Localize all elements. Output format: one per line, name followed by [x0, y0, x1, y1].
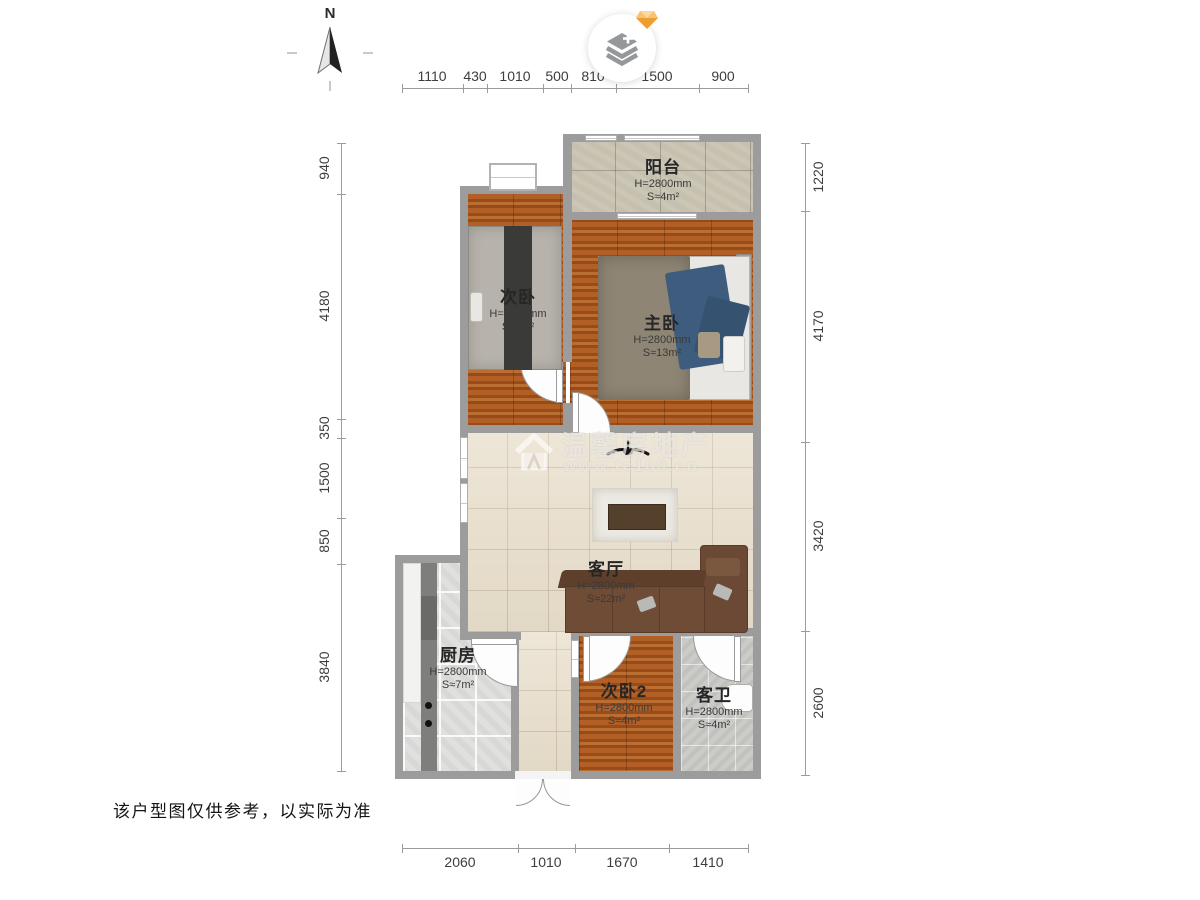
compass-tick [363, 52, 373, 54]
dim-label: 940 [316, 146, 332, 190]
dim-label: 850 [316, 519, 332, 563]
dim-label: 1110 [410, 68, 454, 84]
dim-label: 430 [453, 68, 497, 84]
dim-label: 1220 [810, 155, 826, 199]
dim-label: 1500 [316, 456, 332, 500]
wall [563, 186, 572, 362]
dim-label: 1670 [600, 854, 644, 870]
compass: N [285, 5, 375, 95]
window [460, 483, 468, 523]
wall [395, 771, 515, 779]
dim-line-left [341, 143, 342, 771]
dim-line-right [805, 143, 806, 775]
wall [395, 555, 403, 779]
wall [460, 425, 572, 433]
layers-plus-icon [602, 28, 642, 68]
dim-label: 1010 [493, 68, 537, 84]
door-leaf-master [572, 392, 579, 433]
north-arrow-icon [310, 23, 350, 85]
stove-knob [425, 720, 432, 727]
dim-label: 1410 [686, 854, 730, 870]
sofa-cushion-line [659, 586, 660, 633]
door-leaf-kitchen [471, 638, 517, 645]
dim-label: 900 [701, 68, 745, 84]
sofa-pillow [706, 558, 740, 576]
floor-plan: 阳台 H=2800mm S≈4m² 次卧 H=2800mm S≈8m² 主卧 H… [0, 0, 1200, 900]
window [571, 640, 579, 678]
pillow [698, 332, 720, 358]
dim-label: 2060 [438, 854, 482, 870]
gem-icon [634, 8, 660, 32]
wall [673, 628, 681, 773]
door-leaf-bedroom3 [583, 636, 590, 682]
bathtub [721, 684, 753, 712]
wall [753, 134, 761, 779]
dim-label: 2600 [810, 681, 826, 725]
dim-label: 350 [316, 406, 332, 450]
entry-threshold [515, 771, 571, 779]
dim-label: 3420 [810, 514, 826, 558]
dim-line-top [402, 88, 748, 89]
window [617, 213, 697, 219]
ceiling-fan-icon [606, 437, 650, 463]
disclaimer-text: 该户型图仅供参考，以实际为准 [113, 797, 372, 822]
compass-tick [287, 52, 297, 54]
wall [563, 134, 572, 194]
door-leaf-bath [734, 636, 741, 682]
kitchen-sink [421, 596, 437, 640]
window [585, 135, 617, 141]
entry-door-right [543, 779, 570, 806]
dim-label: 4180 [316, 284, 332, 328]
wall [610, 425, 761, 433]
pillow [470, 292, 483, 322]
dim-label: 1010 [524, 854, 568, 870]
bed-runner [504, 226, 532, 370]
sofa-cushion-line [612, 586, 613, 633]
window [460, 437, 468, 479]
wall [460, 186, 468, 640]
tv-cabinet [608, 504, 666, 530]
compass-north-label: N [285, 5, 375, 22]
sofa-seat [565, 586, 705, 633]
hall-corridor-floor [515, 632, 571, 773]
compass-tick [329, 81, 331, 91]
stove-knob [425, 702, 432, 709]
bay-window [489, 163, 537, 191]
pillow [723, 336, 745, 372]
wall [395, 555, 468, 563]
dim-label: 4170 [810, 304, 826, 348]
kitchen-counter [421, 563, 437, 771]
wall [571, 771, 761, 779]
entry-door-left [516, 779, 543, 806]
kitchen-cabinet [403, 563, 421, 703]
room-balcony-floor [570, 140, 755, 216]
window [624, 135, 700, 141]
dim-label: 3840 [316, 645, 332, 689]
